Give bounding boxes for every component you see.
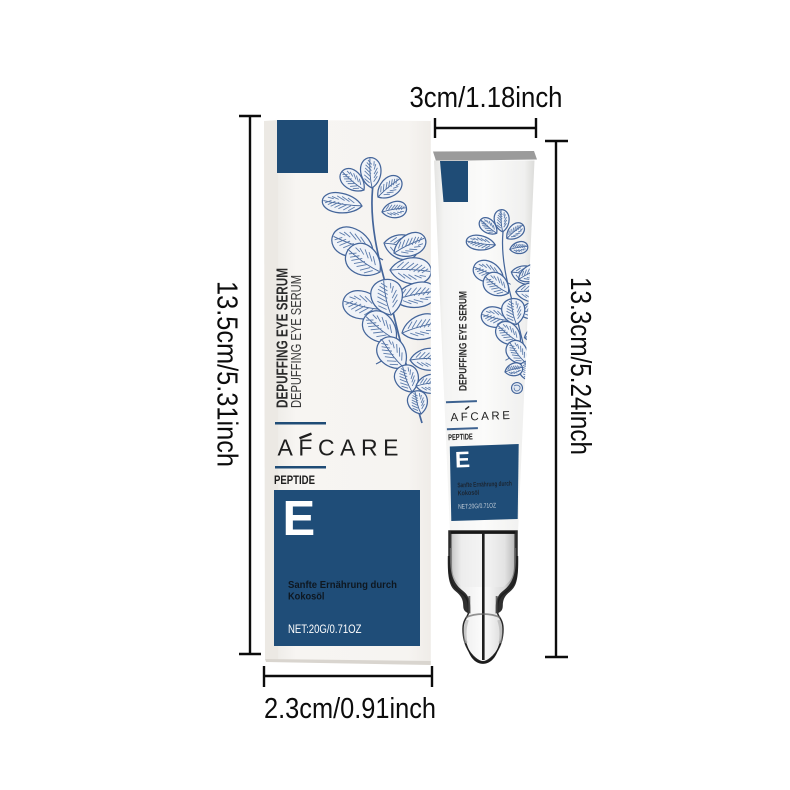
svg-text:Kokosöl: Kokosöl — [458, 490, 480, 498]
svg-text:Sanfte Ernährung durch: Sanfte Ernährung durch — [288, 579, 397, 591]
svg-text:DEPUFFING EYE SERUM: DEPUFFING EYE SERUM — [288, 275, 305, 408]
svg-text:2.3cm/0.91inch: 2.3cm/0.91inch — [264, 693, 436, 725]
svg-text:13.3cm/5.24inch: 13.3cm/5.24inch — [564, 277, 596, 455]
svg-text:PEPTIDE: PEPTIDE — [274, 473, 315, 487]
svg-text:PEPTIDE: PEPTIDE — [448, 431, 473, 442]
svg-text:3cm/1.18inch: 3cm/1.18inch — [410, 82, 563, 114]
svg-text:E: E — [283, 492, 316, 546]
svg-text:NET:20G/0.71OZ: NET:20G/0.71OZ — [458, 503, 496, 511]
svg-text:Kokosöl: Kokosöl — [288, 591, 325, 603]
svg-text:NET:20G/0.71OZ: NET:20G/0.71OZ — [288, 624, 362, 636]
svg-text:DEPUFFING EYE SERUM: DEPUFFING EYE SERUM — [458, 291, 470, 391]
svg-text:13.5cm/5.31inch: 13.5cm/5.31inch — [211, 281, 243, 467]
svg-text:E: E — [455, 447, 471, 473]
